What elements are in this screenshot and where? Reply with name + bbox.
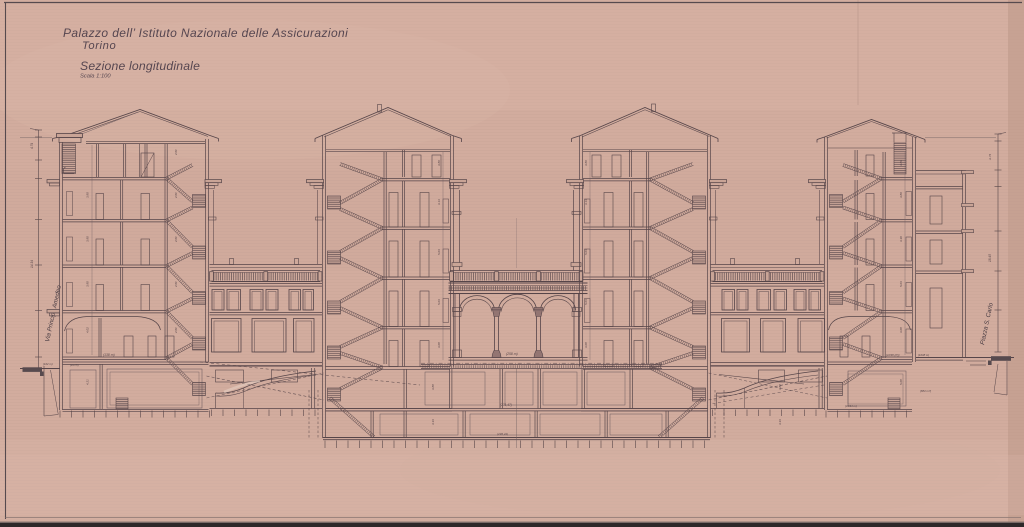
svg-text:(1038 (P)): (1038 (P)) (886, 353, 900, 357)
svg-text:(258 m): (258 m) (506, 352, 518, 356)
svg-text:5.04: 5.04 (584, 249, 588, 255)
svg-text:Torino: Torino (82, 40, 116, 52)
svg-text:2.80: 2.80 (174, 281, 178, 288)
svg-text:2.80: 2.80 (174, 327, 178, 334)
svg-text:3.80: 3.80 (584, 160, 588, 166)
svg-text:Scala 1:100: Scala 1:100 (80, 74, 111, 80)
svg-text:14.34: 14.34 (30, 260, 34, 268)
svg-text:18.45: 18.45 (988, 254, 992, 262)
svg-text:(107m): (107m) (70, 363, 79, 367)
svg-text:4.30: 4.30 (899, 236, 903, 242)
svg-text:5.08: 5.08 (899, 379, 903, 385)
svg-text:4.08: 4.08 (584, 342, 588, 348)
svg-text:2.80: 2.80 (174, 236, 178, 243)
svg-text:Palazzo dell’ Istituto Naziona: Palazzo dell’ Istituto Nazionale delle A… (63, 26, 348, 40)
svg-text:4.14: 4.14 (437, 199, 441, 205)
svg-text:5.04: 5.04 (899, 281, 903, 287)
svg-text:5.04: 5.04 (437, 299, 441, 305)
svg-text:(138 m): (138 m) (103, 353, 115, 357)
svg-text:4.21: 4.21 (86, 379, 90, 385)
svg-text:(1038 m): (1038 m) (918, 353, 929, 357)
svg-text:(102 m): (102 m) (43, 362, 53, 366)
svg-text:Sezione longitudinale: Sezione longitudinale (80, 59, 200, 73)
svg-text:A.74: A.74 (988, 153, 992, 161)
svg-text:(236,41): (236,41) (497, 432, 508, 436)
svg-text:4.02: 4.02 (86, 327, 90, 333)
svg-text:3.80: 3.80 (86, 236, 90, 242)
svg-text:4.14: 4.14 (584, 199, 588, 205)
svg-text:(884 m?): (884 m?) (920, 389, 931, 393)
svg-text:3.80: 3.80 (899, 160, 903, 166)
svg-text:3.34: 3.34 (431, 419, 435, 425)
svg-text:(231,47): (231,47) (500, 403, 512, 407)
svg-text:5.04: 5.04 (437, 249, 441, 255)
svg-text:3.80: 3.80 (899, 192, 903, 198)
svg-text:4.88: 4.88 (431, 384, 435, 390)
svg-text:2.80: 2.80 (174, 149, 178, 156)
svg-text:3.80: 3.80 (437, 160, 441, 166)
svg-text:3.34: 3.34 (778, 419, 782, 425)
svg-text:2.80: 2.80 (174, 192, 178, 199)
svg-text:3.80: 3.80 (86, 281, 90, 287)
svg-text:(1034 m): (1034 m) (845, 404, 857, 408)
svg-text:4.88: 4.88 (778, 384, 782, 390)
svg-text:5.04: 5.04 (584, 299, 588, 305)
svg-text:4.74: 4.74 (30, 143, 34, 149)
svg-text:4.08: 4.08 (899, 327, 903, 333)
svg-text:4.08: 4.08 (437, 342, 441, 348)
svg-text:3.80: 3.80 (86, 192, 90, 198)
